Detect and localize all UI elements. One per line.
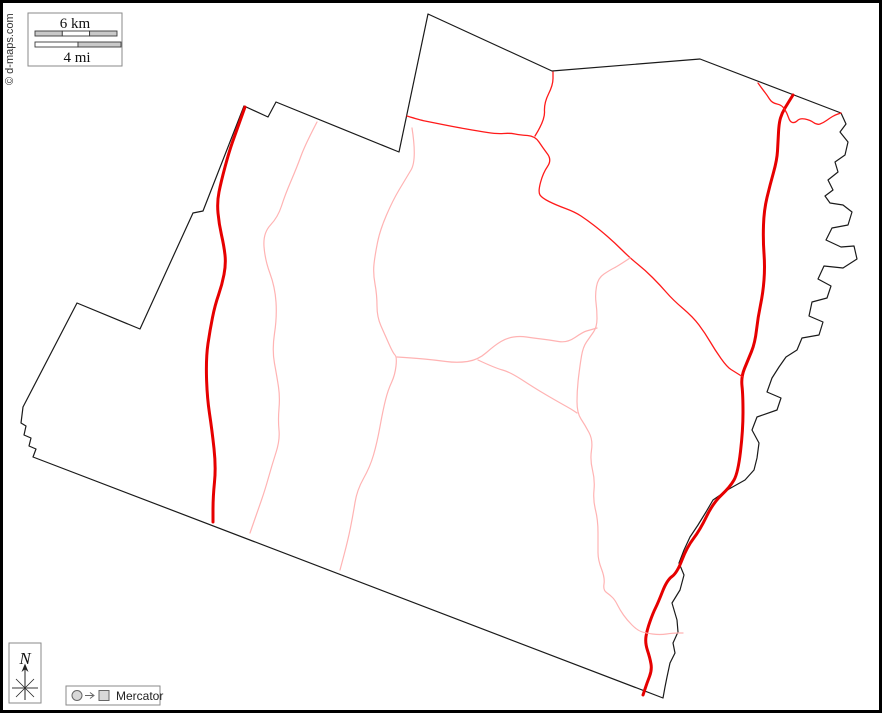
projection-label: Mercator [116, 689, 163, 703]
projection-legend: Mercator [66, 686, 163, 705]
light-road-center [340, 128, 414, 570]
light-road-west [250, 122, 317, 533]
map-features [21, 14, 857, 698]
light-road-cross-east [397, 328, 597, 362]
county-boundary [21, 14, 857, 698]
scale-bar-mi [35, 42, 121, 47]
globe-circle-icon [72, 691, 82, 701]
scale-mi-label: 4 mi [63, 50, 90, 66]
light-road-cross-southeast [478, 360, 577, 413]
major-road-west [206, 107, 245, 522]
projected-square-icon [99, 691, 109, 701]
minor-road-north-branch [535, 72, 553, 136]
map-canvas: 6 km 4 mi © d-maps.com N [0, 0, 882, 713]
scale-km-seg1 [35, 31, 62, 36]
light-road-east [577, 258, 683, 635]
scale-bar: 6 km 4 mi [28, 13, 122, 66]
scale-bar-km [35, 31, 117, 36]
north-indicator: N [9, 643, 41, 703]
scale-km-label: 6 km [60, 16, 91, 32]
minor-road-ne-connector [758, 83, 841, 124]
scale-km-seg3 [90, 31, 117, 36]
major-road-east [643, 95, 793, 695]
scale-km-seg2 [62, 31, 89, 36]
scale-mi-seg1 [35, 42, 78, 47]
scale-mi-seg2 [78, 42, 121, 47]
copyright: © d-maps.com [4, 13, 16, 85]
map-page: 6 km 4 mi © d-maps.com N [0, 0, 882, 713]
